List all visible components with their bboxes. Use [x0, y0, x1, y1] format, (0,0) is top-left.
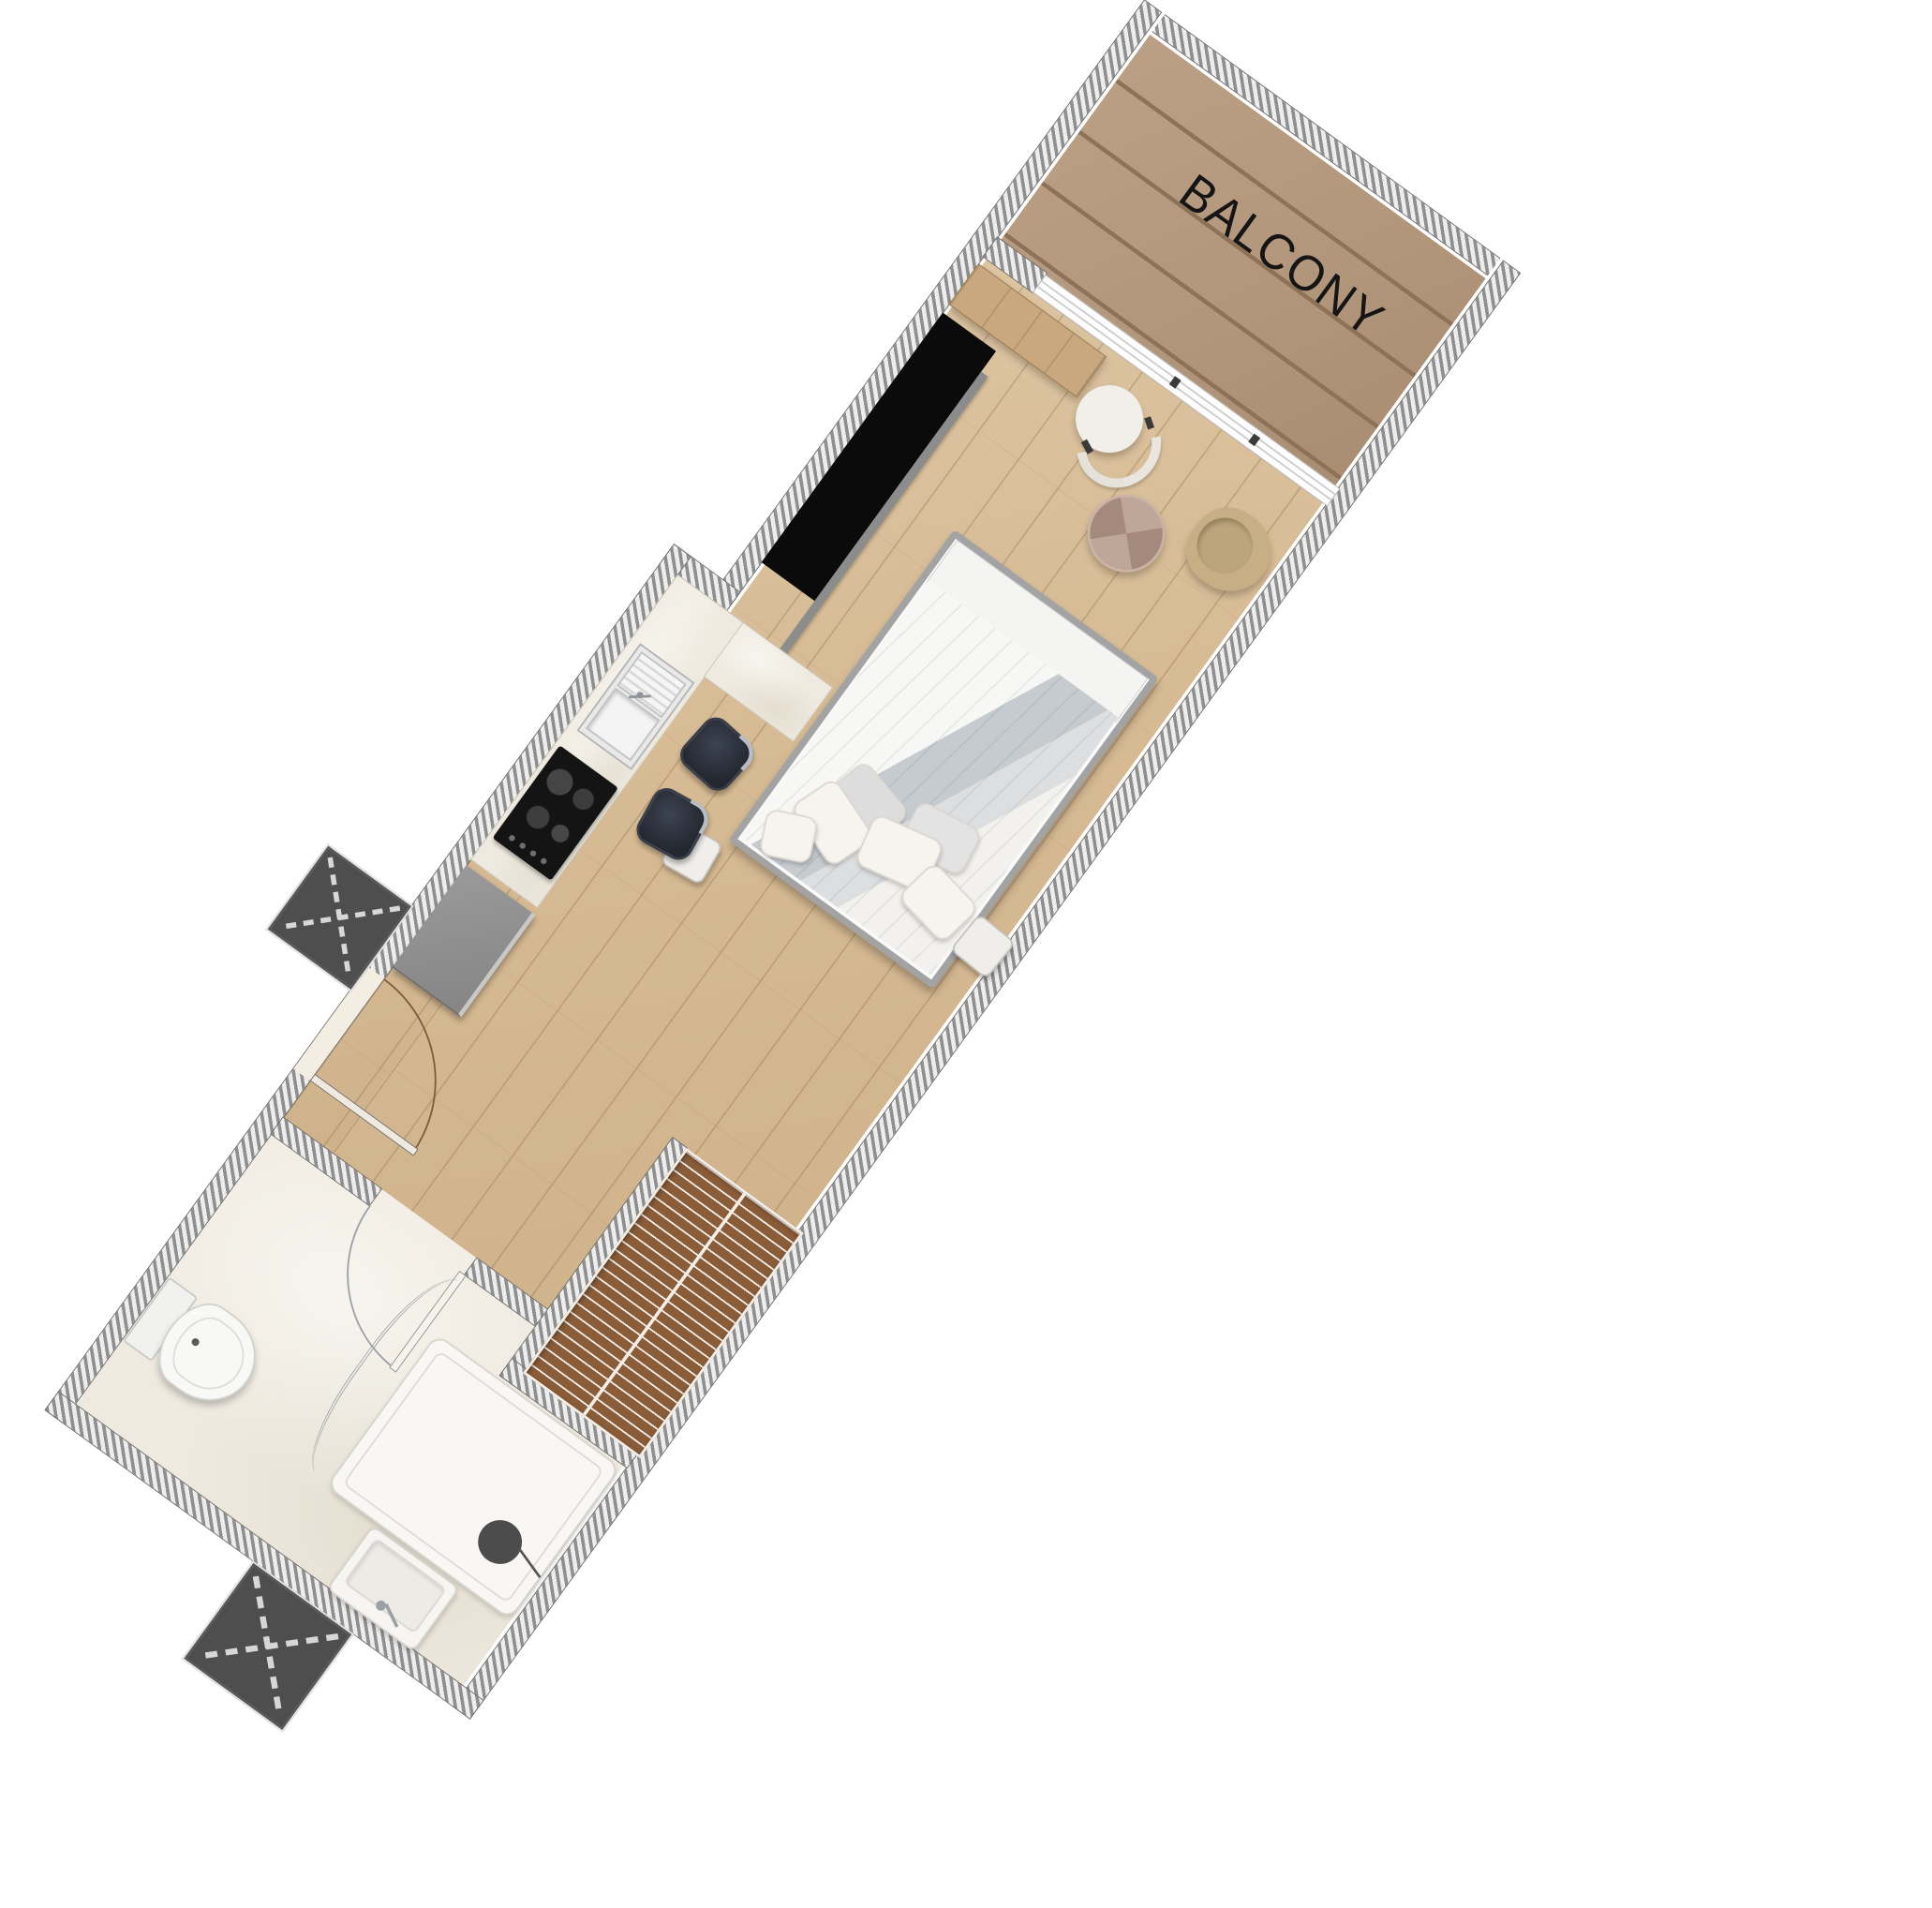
floor-plan: BALCONY	[20, 0, 1527, 1826]
sliding-door-handle	[1248, 433, 1260, 445]
sliding-door-handle	[1168, 376, 1181, 388]
floor-plan-body: BALCONY	[20, 0, 1520, 1822]
balcony-label: BALCONY	[1118, 125, 1447, 386]
floorplan-canvas: BALCONY	[0, 0, 1932, 1908]
